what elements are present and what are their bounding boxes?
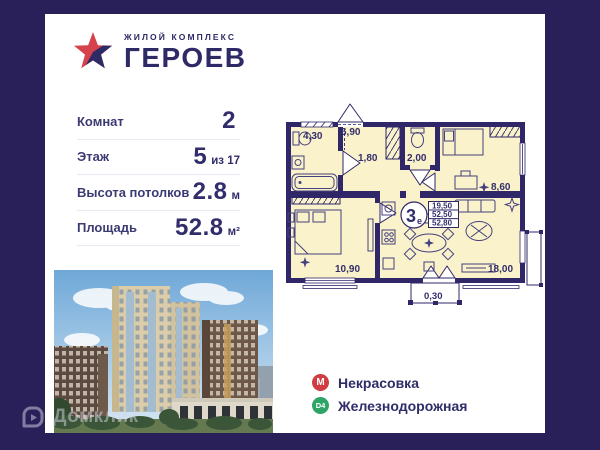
spec-row-area: Площадь 52.8м² bbox=[77, 211, 240, 247]
d4-line-badge: D4 bbox=[312, 397, 329, 414]
center-tower bbox=[112, 286, 200, 412]
floor-plan: 6,90 4,30 1,80 2,00 8,60 10,90 18,00 0,3… bbox=[283, 101, 545, 313]
complex-subtitle: ЖИЛОЙ КОМПЛЕКС bbox=[124, 32, 247, 42]
complex-logo: ЖИЛОЙ КОМПЛЕКС ГЕРОЕВ bbox=[71, 30, 247, 74]
apartment-type-stamp: 3 е 19,50 52,50 52,80 bbox=[401, 202, 459, 229]
metro-station-row: М Некрасовка bbox=[312, 374, 467, 391]
type-letter: е bbox=[417, 216, 422, 226]
spec-suffix: м² bbox=[228, 226, 240, 238]
room-label-balcony: 0,30 bbox=[424, 291, 443, 302]
spec-value: 2.8 bbox=[193, 178, 228, 206]
listing-card-background: ЖИЛОЙ КОМПЛЕКС ГЕРОЕВ Комнат 2 Этаж 5из … bbox=[0, 0, 600, 450]
domclick-house-icon bbox=[20, 404, 46, 430]
spec-suffix: м bbox=[231, 190, 240, 202]
spec-label: Высота потолков bbox=[77, 185, 189, 200]
total-area-value: 52,80 bbox=[432, 219, 453, 228]
spec-value: 52.8 bbox=[175, 214, 224, 242]
spec-row-floor: Этаж 5из 17 bbox=[77, 140, 240, 176]
complex-title: ГЕРОЕВ bbox=[124, 44, 247, 72]
room-label-wc: 2,00 bbox=[407, 153, 427, 164]
spec-suffix: из 17 bbox=[211, 155, 240, 167]
transit-stations: М Некрасовка D4 Железнодорожная bbox=[312, 374, 467, 420]
spec-label: Площадь bbox=[77, 220, 137, 235]
room-label-hall: 6,90 bbox=[341, 127, 361, 138]
spec-row-ceiling: Высота потолков 2.8м bbox=[77, 175, 240, 211]
room-label-bedroom-2: 8,60 bbox=[491, 182, 511, 193]
listing-card: ЖИЛОЙ КОМПЛЕКС ГЕРОЕВ Комнат 2 Этаж 5из … bbox=[45, 14, 545, 433]
balcony-right bbox=[525, 230, 543, 287]
apartment-specs: Комнат 2 Этаж 5из 17 Высота потолков 2.8… bbox=[77, 104, 240, 246]
type-number: 3 bbox=[406, 206, 416, 226]
star-logo-icon bbox=[71, 30, 115, 74]
spec-label: Этаж bbox=[77, 149, 109, 164]
watermark-text: Домклик bbox=[53, 406, 139, 428]
d4-station-row: D4 Железнодорожная bbox=[312, 397, 467, 414]
spec-label: Комнат bbox=[77, 114, 124, 129]
metro-station-name: Некрасовка bbox=[338, 375, 419, 391]
room-label-kitchen-living: 18,00 bbox=[488, 264, 513, 275]
spec-value: 2 bbox=[222, 107, 236, 135]
room-label-bathroom: 4,30 bbox=[303, 131, 323, 142]
domclick-watermark: Домклик bbox=[20, 404, 139, 430]
d4-station-name: Железнодорожная bbox=[338, 398, 467, 414]
spec-value: 5 bbox=[193, 143, 207, 171]
spec-row-rooms: Комнат 2 bbox=[77, 104, 240, 140]
metro-line-badge: М bbox=[312, 374, 329, 391]
room-label-wardrobe: 1,80 bbox=[358, 153, 378, 164]
room-label-bedroom-1: 10,90 bbox=[335, 264, 360, 275]
